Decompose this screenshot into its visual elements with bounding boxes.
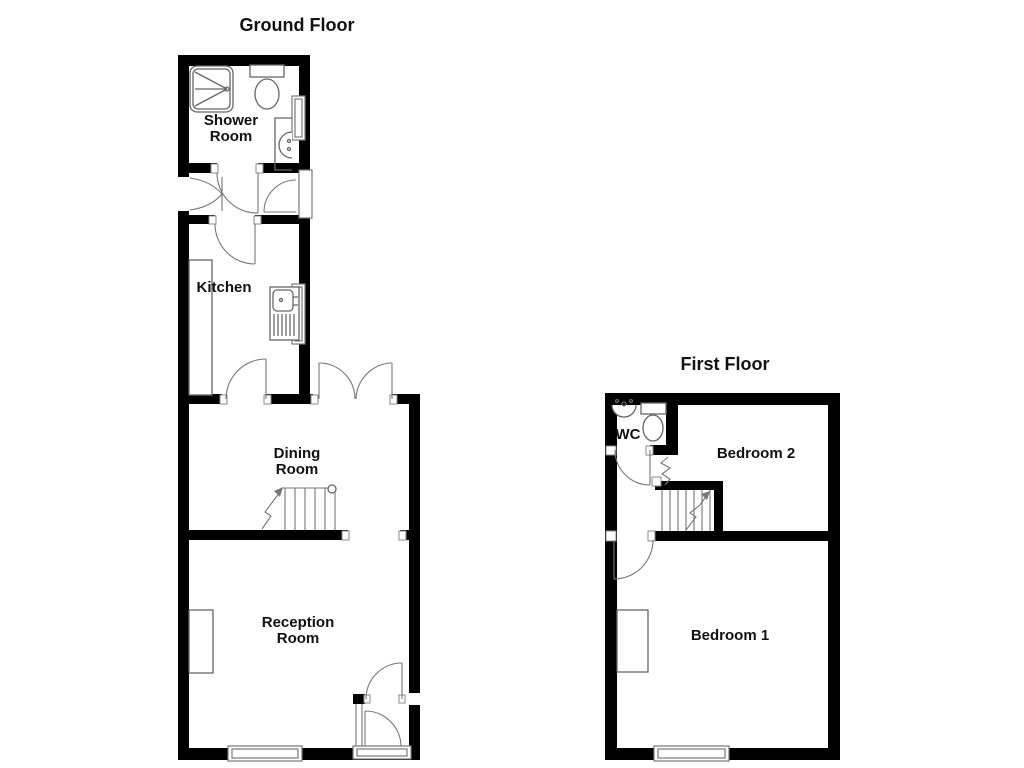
- room-label-dining-line1: Dining: [274, 445, 321, 462]
- staircase-first: [662, 490, 710, 531]
- jamb: [390, 395, 397, 404]
- door-arc: [226, 359, 266, 399]
- window-bedroom1-front: [654, 746, 729, 761]
- floorplan-canvas: Ground Floor: [0, 0, 1024, 768]
- toilet-icon-ground: [250, 65, 284, 109]
- room-label-bedroom2: Bedroom 2: [717, 445, 795, 462]
- room-label-reception-line2: Room: [277, 630, 320, 647]
- room-label-dining-line2: Room: [276, 461, 319, 478]
- jamb: [606, 531, 616, 541]
- kitchen-sink-icon: [270, 287, 299, 340]
- staircase-ground: [262, 485, 336, 530]
- basin-icon-wc: [612, 400, 636, 418]
- room-label-shower-line1: Shower: [204, 112, 258, 129]
- stair-treads: [662, 490, 710, 531]
- jamb: [399, 531, 406, 540]
- wall-segment: [655, 481, 723, 490]
- door-arc: [365, 711, 401, 747]
- wall-segment: [266, 394, 313, 404]
- jamb: [342, 531, 349, 540]
- stair-arrowhead: [274, 487, 283, 497]
- french-doors: [319, 363, 392, 399]
- wall-segment: [178, 211, 189, 760]
- entrance-porch: [353, 663, 411, 759]
- newel-square: [652, 477, 661, 486]
- jamb: [211, 164, 218, 173]
- room-label-kitchen: Kitchen: [196, 279, 251, 296]
- door-arc: [615, 450, 650, 485]
- porch-wall: [356, 704, 362, 748]
- jamb: [256, 164, 263, 173]
- wall-segment: [828, 393, 840, 760]
- toilet-icon-wc: [641, 403, 666, 441]
- room-label-reception-line1: Reception: [262, 614, 335, 631]
- stair-direction-line: [262, 491, 281, 529]
- first-floor-plan: First Floor: [605, 354, 840, 761]
- side-door-recess: [299, 170, 312, 218]
- stair-treads: [283, 488, 335, 530]
- basin-icon-ground: [275, 118, 292, 170]
- wall-segment: [655, 531, 840, 541]
- door-arc: [217, 173, 258, 213]
- wall-segment: [650, 445, 678, 455]
- door-arc: [264, 180, 296, 212]
- door-arc: [614, 540, 653, 579]
- ground-windows: [228, 96, 312, 761]
- jamb: [209, 216, 216, 224]
- porch-threshold: [353, 746, 411, 759]
- ground-walls: [178, 55, 420, 760]
- stair-direction-line: [686, 495, 707, 530]
- window-reception-front: [228, 746, 302, 761]
- jamb: [311, 395, 318, 404]
- chimney-breast-ground: [189, 610, 213, 673]
- newel-post: [328, 485, 336, 493]
- chimney-breast-first: [617, 610, 648, 672]
- jamb: [254, 216, 261, 224]
- shower-cubicle-icon: [190, 66, 233, 112]
- ground-floor-plan: Ground Floor: [178, 15, 420, 761]
- ground-room-labels: Shower Room Kitchen Dining Room Receptio…: [196, 112, 334, 647]
- door-arc: [215, 224, 255, 264]
- wall-segment: [409, 394, 420, 693]
- door-arc: [366, 663, 402, 699]
- wall-segment: [605, 393, 840, 405]
- first-floor-title: First Floor: [681, 354, 770, 374]
- room-label-bedroom1: Bedroom 1: [691, 627, 769, 644]
- porch-wall-stub: [353, 694, 365, 704]
- window-shower-room: [292, 96, 305, 140]
- room-label-shower-line2: Room: [210, 128, 253, 145]
- wall-segment: [178, 55, 310, 66]
- room-label-wc: WC: [616, 426, 641, 443]
- ground-floor-title: Ground Floor: [240, 15, 355, 35]
- floorplan-drawing: Ground Floor: [0, 0, 1024, 768]
- jamb: [264, 395, 271, 404]
- wall-segment: [178, 530, 348, 540]
- jamb: [648, 531, 655, 541]
- wall-segment: [178, 55, 189, 177]
- jamb: [364, 695, 370, 703]
- break-line: [661, 457, 670, 485]
- cupboard-door-arc: [190, 194, 222, 210]
